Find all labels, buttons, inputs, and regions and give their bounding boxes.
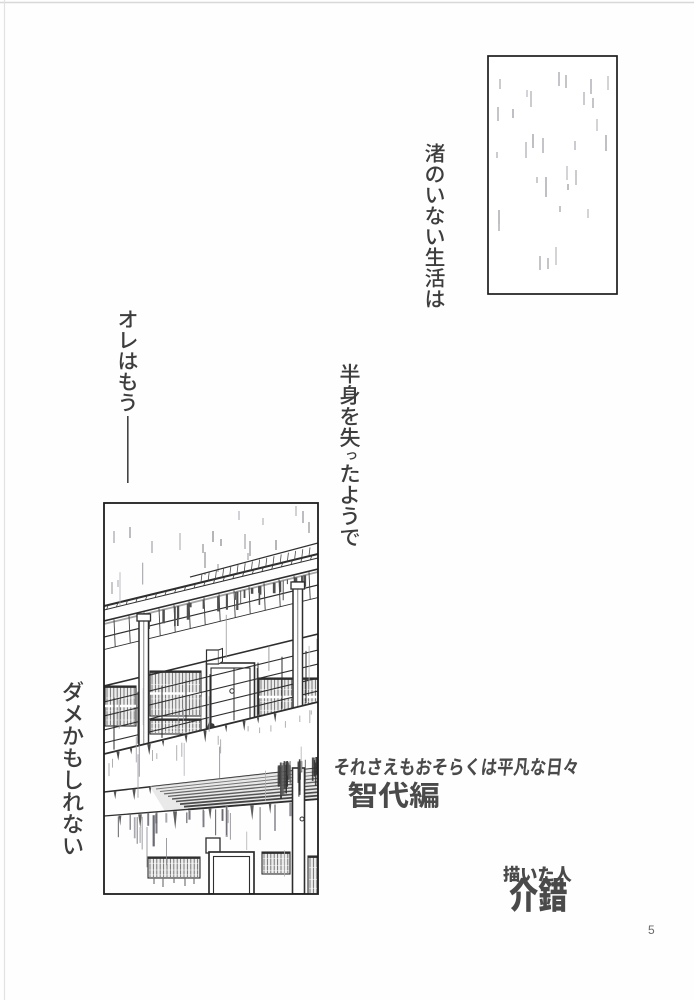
svg-text:5: 5 — [648, 923, 655, 937]
